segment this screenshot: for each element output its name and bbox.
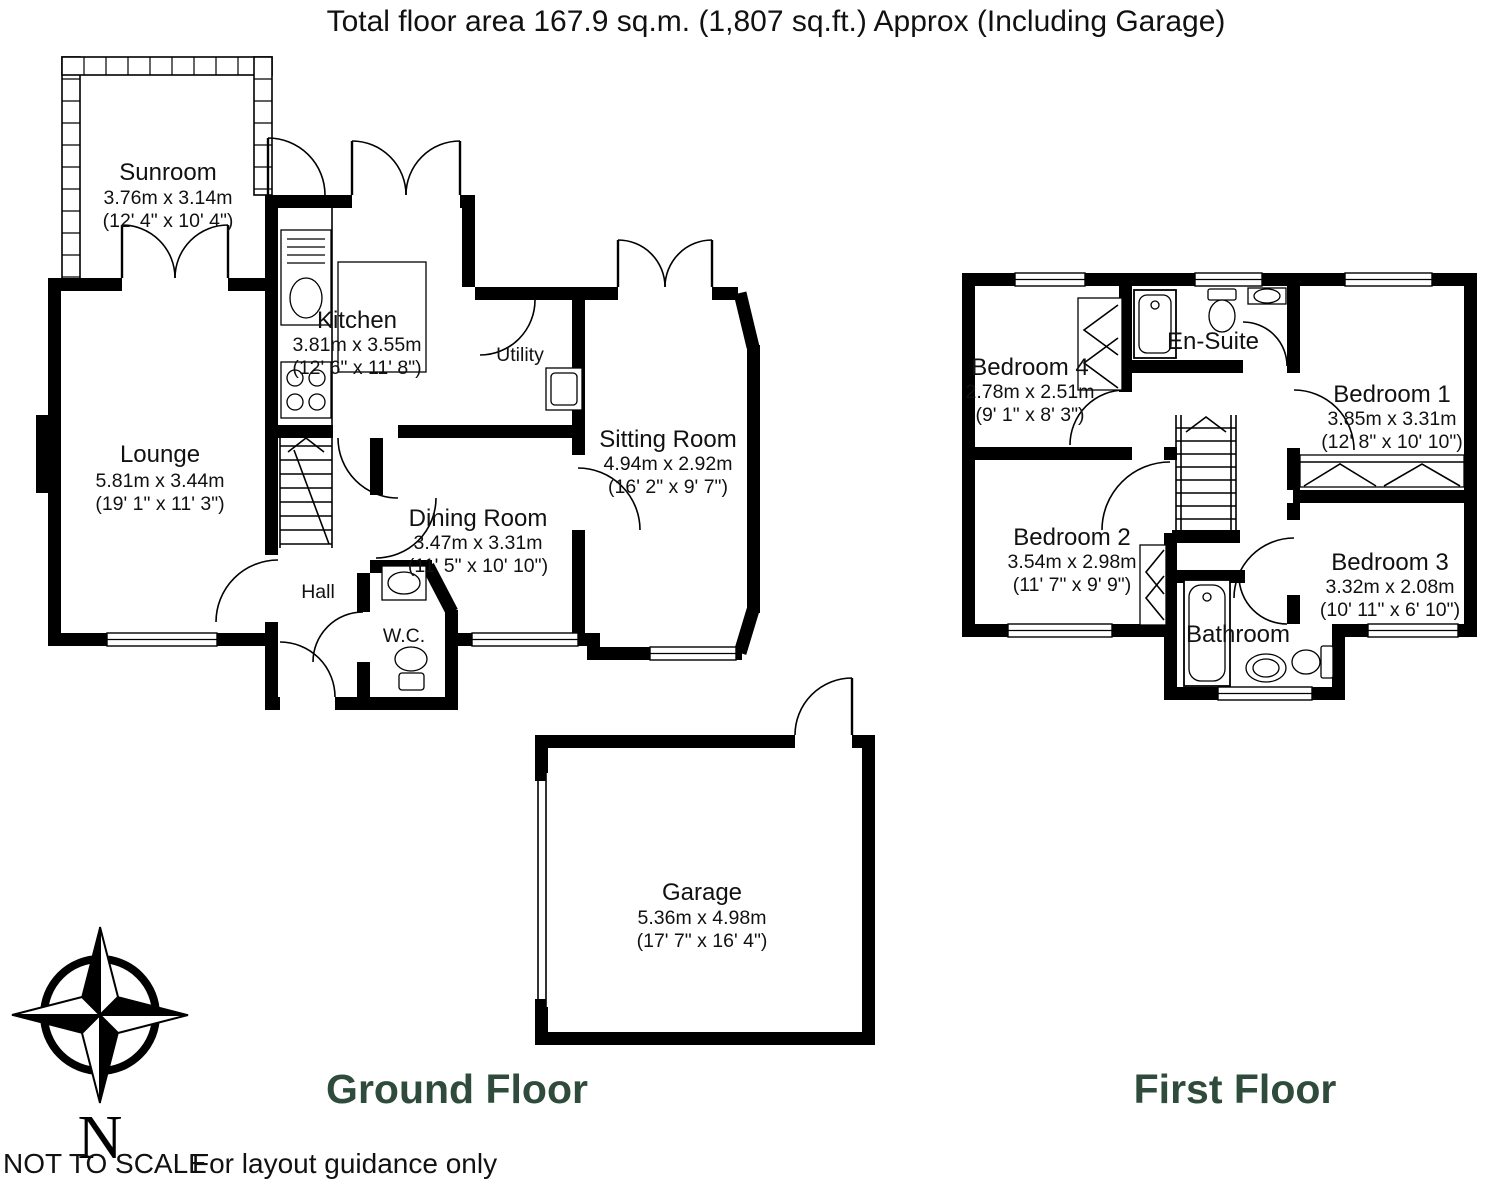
first-floor-plan: Bedroom 4 2.78m x 2.51m (9' 1" x 8' 3") …	[962, 273, 1477, 700]
bedroom1-window	[1345, 273, 1432, 286]
floorplan-canvas: Total floor area 167.9 sq.m. (1,807 sq.f…	[0, 0, 1512, 1184]
bedroom4-metric: 2.78m x 2.51m	[966, 381, 1095, 403]
kitchen-imperial: (12' 6" x 11' 8")	[292, 357, 421, 379]
bedroom3-name: Bedroom 3	[1331, 549, 1448, 576]
bathroom-name: Bathroom	[1186, 621, 1290, 648]
bedroom1-name: Bedroom 1	[1333, 381, 1450, 408]
compass-rose-icon: N	[12, 927, 188, 1172]
garage-name: Garage	[662, 879, 742, 906]
bedroom4-window	[1015, 273, 1085, 286]
room-label-ensuite: En-Suite	[1167, 328, 1259, 355]
ground-floor-title: Ground Floor	[326, 1066, 588, 1112]
bedroom1-metric: 3.85m x 3.31m	[1328, 408, 1457, 430]
room-label-bathroom: Bathroom	[1186, 621, 1290, 648]
bedroom2-cupboard-icon	[1140, 545, 1166, 625]
bedroom2-metric: 3.54m x 2.98m	[1008, 551, 1137, 573]
dining-room-metric: 3.47m x 3.31m	[414, 532, 543, 554]
room-label-lounge: Lounge 5.81m x 3.44m (19' 1" x 11' 3")	[95, 441, 224, 515]
room-label-sunroom: Sunroom 3.76m x 3.14m (12' 4" x 10' 4")	[103, 159, 234, 232]
garage-structure	[535, 678, 875, 1045]
ensuite-window	[1195, 273, 1262, 286]
room-label-sitting-room: Sitting Room 4.94m x 2.92m (16' 2" x 9' …	[599, 426, 736, 498]
bedroom2-window	[1008, 624, 1112, 637]
room-label-bedroom3: Bedroom 3 3.32m x 2.08m (10' 11" x 6' 10…	[1320, 549, 1460, 621]
bedroom2-imperial: (11' 7" x 9' 9")	[1013, 574, 1131, 596]
wc-toilet-icon	[395, 647, 427, 690]
bedroom4-name: Bedroom 4	[971, 354, 1088, 381]
bathroom-sink-icon	[1246, 654, 1286, 682]
dining-window	[472, 633, 578, 646]
sitting-room-name: Sitting Room	[599, 426, 736, 453]
scale-note: NOT TO SCALE	[3, 1148, 207, 1179]
bedroom1-wardrobe-icon	[1300, 455, 1464, 487]
sitting-room-metric: 4.94m x 2.92m	[604, 453, 733, 475]
bedroom2-name: Bedroom 2	[1013, 524, 1130, 551]
lounge-metric: 5.81m x 3.44m	[96, 470, 225, 492]
room-label-utility: Utility	[496, 344, 544, 366]
bathroom-toilet-icon	[1292, 646, 1333, 678]
hall-name: Hall	[301, 581, 335, 603]
ground-floor-plan: Sunroom 3.76m x 3.14m (12' 4" x 10' 4") …	[36, 57, 875, 1045]
utility-name: Utility	[496, 344, 544, 366]
room-label-wc: W.C.	[383, 625, 425, 647]
page-title: Total floor area 167.9 sq.m. (1,807 sq.f…	[327, 5, 1226, 38]
bedroom4-imperial: (9' 1" x 8' 3")	[975, 404, 1084, 426]
sunroom-name: Sunroom	[119, 159, 216, 186]
garage-imperial: (17' 7" x 16' 4")	[637, 930, 768, 952]
room-label-hall: Hall	[301, 581, 335, 603]
lounge-window	[107, 633, 217, 646]
ensuite-sink-icon	[1248, 288, 1286, 304]
sunroom-imperial: (12' 4" x 10' 4")	[103, 210, 234, 232]
sitting-room-imperial: (16' 2" x 9' 7")	[608, 476, 728, 498]
first-floor-title: First Floor	[1134, 1066, 1337, 1112]
garage-side-door-arc	[795, 678, 852, 735]
lounge-name: Lounge	[120, 441, 200, 468]
dining-room-name: Dining Room	[409, 505, 548, 532]
kitchen-metric: 3.81m x 3.55m	[293, 334, 422, 356]
kitchen-name: Kitchen	[317, 307, 397, 334]
utility-appliance-icon	[546, 368, 582, 410]
sitting-window	[650, 647, 736, 660]
ensuite-toilet-icon	[1208, 289, 1236, 332]
room-label-bedroom2: Bedroom 2 3.54m x 2.98m (11' 7" x 9' 9")	[1008, 524, 1137, 596]
garage-door	[535, 773, 546, 1007]
bathroom-window	[1218, 687, 1312, 700]
stairs-up-arrow	[1186, 417, 1226, 432]
room-label-garage: Garage 5.36m x 4.98m (17' 7" x 16' 4")	[637, 879, 768, 952]
first-stairs	[1176, 415, 1236, 530]
room-label-bedroom4: Bedroom 4 2.78m x 2.51m (9' 1" x 8' 3")	[966, 354, 1095, 426]
floorplan-page: Total floor area 167.9 sq.m. (1,807 sq.f…	[0, 0, 1512, 1184]
bedroom1-imperial: (12' 8" x 10' 10")	[1321, 431, 1463, 453]
ensuite-name: En-Suite	[1167, 328, 1259, 355]
stairs-up-arrow	[288, 438, 324, 452]
bedroom3-imperial: (10' 11" x 6' 10")	[1320, 599, 1460, 621]
ground-stairs	[280, 438, 332, 548]
room-label-bedroom1: Bedroom 1 3.85m x 3.31m (12' 8" x 10' 10…	[1321, 381, 1463, 453]
guidance-note: For layout guidance only	[192, 1148, 497, 1179]
sunroom-metric: 3.76m x 3.14m	[104, 187, 233, 209]
wc-name: W.C.	[383, 625, 425, 647]
room-label-dining-room: Dining Room 3.47m x 3.31m (11' 5" x 10' …	[408, 505, 548, 577]
garage-metric: 5.36m x 4.98m	[638, 907, 767, 929]
dining-room-imperial: (11' 5" x 10' 10")	[408, 555, 548, 577]
bedroom3-window	[1368, 624, 1458, 637]
lounge-imperial: (19' 1" x 11' 3")	[95, 493, 224, 515]
bedroom3-metric: 3.32m x 2.08m	[1326, 576, 1455, 598]
